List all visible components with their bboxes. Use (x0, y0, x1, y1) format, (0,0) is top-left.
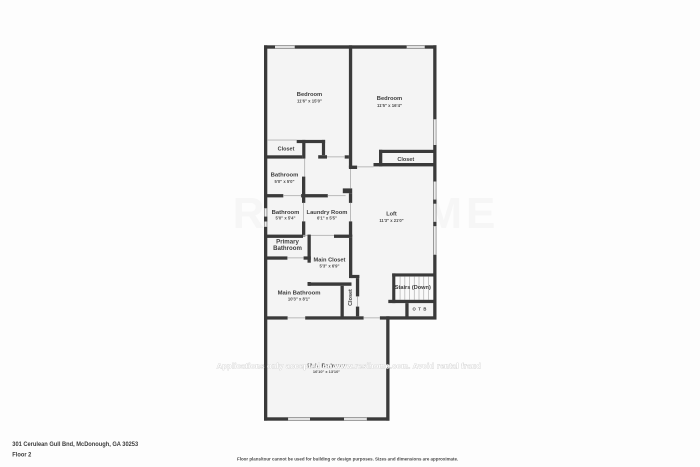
svg-text:Loft: Loft (386, 212, 397, 218)
svg-text:Bathroom: Bathroom (273, 245, 302, 252)
svg-text:Applications only accepted on: Applications only accepted on www.resiho… (217, 362, 481, 371)
svg-text:301 Cerulean Gull Bnd, McDonou: 301 Cerulean Gull Bnd, McDonough, GA 302… (12, 441, 138, 449)
svg-text:10'3" x 8'1": 10'3" x 8'1" (288, 297, 310, 302)
svg-text:5'0" x 5'0": 5'0" x 5'0" (275, 179, 295, 184)
svg-text:Bathroom: Bathroom (271, 173, 299, 179)
svg-text:O T B: O T B (412, 307, 427, 312)
svg-text:5'3" x 6'9": 5'3" x 6'9" (320, 264, 340, 269)
svg-text:Floor 2: Floor 2 (12, 451, 31, 459)
svg-text:11'6" x 15'0": 11'6" x 15'0" (297, 99, 322, 104)
svg-text:Stairs (Down): Stairs (Down) (395, 285, 431, 291)
svg-text:Closet: Closet (348, 289, 354, 306)
svg-text:11'5" x 16'4": 11'5" x 16'4" (377, 103, 402, 108)
svg-text:Bedroom: Bedroom (297, 92, 322, 98)
svg-text:6'1" x 5'5": 6'1" x 5'5" (317, 216, 337, 221)
svg-text:5'0" x 5'4": 5'0" x 5'4" (276, 216, 296, 221)
svg-text:Closet: Closet (397, 157, 414, 163)
svg-text:Bedroom: Bedroom (377, 96, 402, 102)
svg-text:Closet: Closet (278, 146, 295, 152)
svg-text:11'3" x 21'0": 11'3" x 21'0" (379, 218, 403, 223)
svg-text:Floor plans/tour cannot be use: Floor plans/tour cannot be used for buil… (237, 457, 458, 462)
